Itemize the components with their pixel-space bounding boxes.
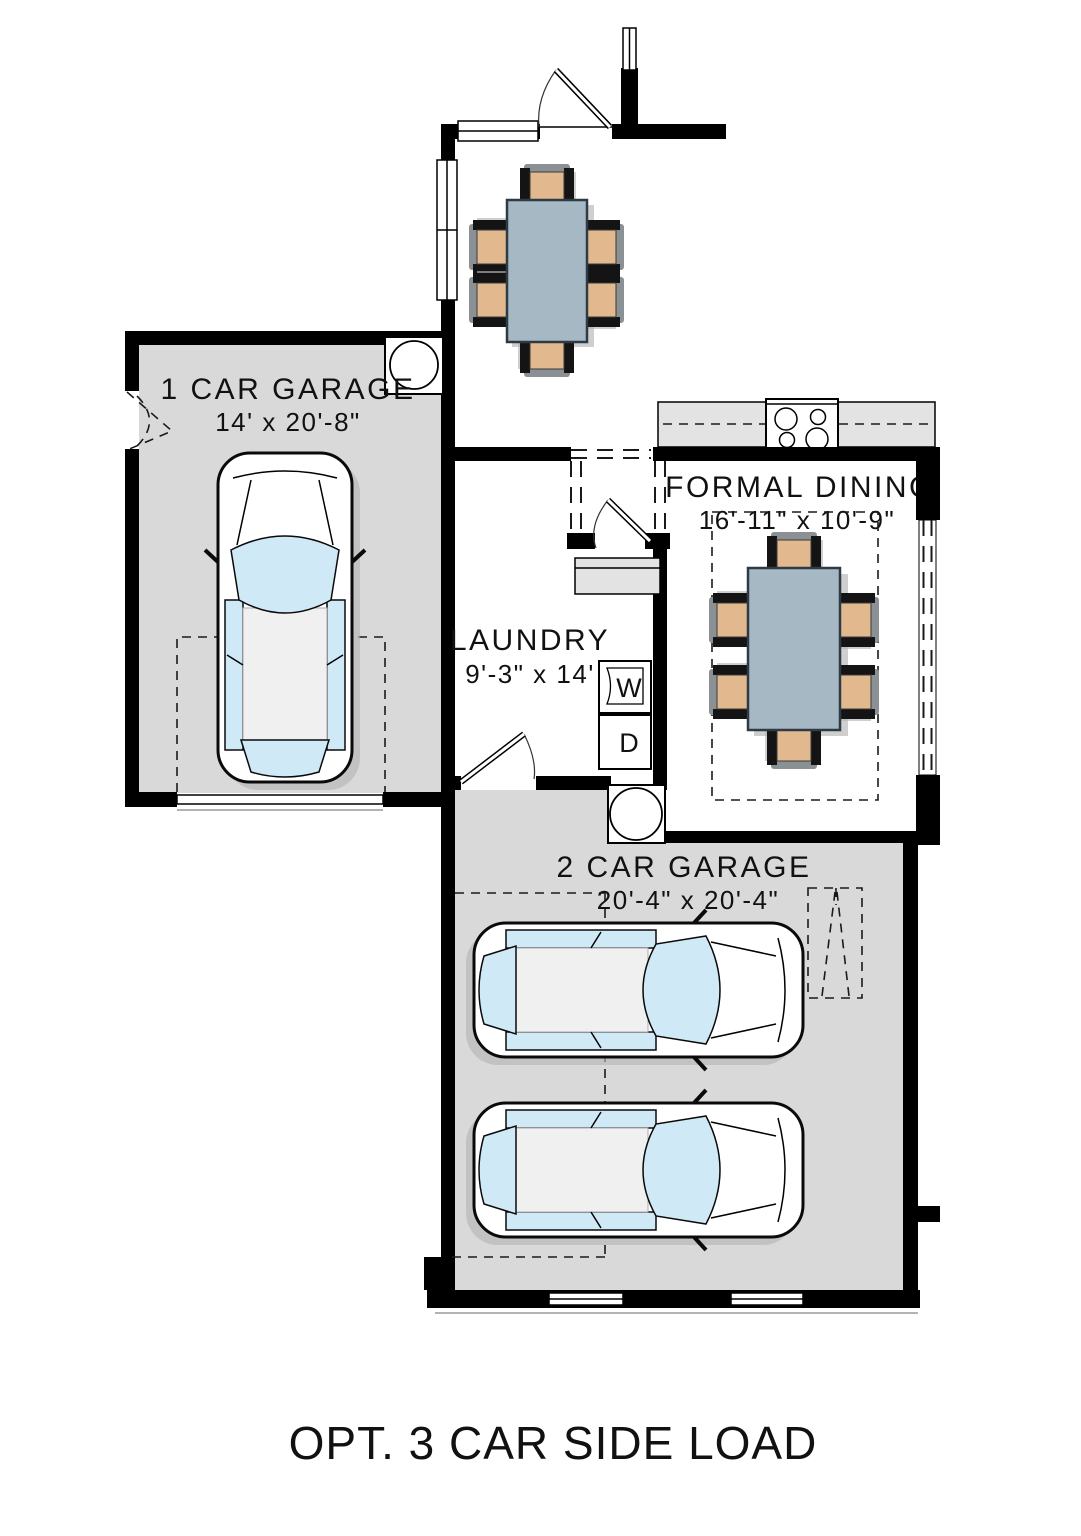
garage-1-dims: 14' x 20'-8" (215, 407, 361, 437)
garage-1-label: 1 CAR GARAGE (160, 373, 415, 406)
laundry-room: LAUNDRY 9'-3" x 14' W D (441, 624, 656, 790)
garage-2-window-left (549, 1293, 623, 1305)
wall (903, 845, 918, 1292)
floor-plan: 1 CAR GARAGE 14' x 20'-8" (0, 0, 1081, 1536)
washer-icon: W (599, 661, 651, 713)
table-top (748, 568, 840, 730)
dining-table (709, 532, 879, 769)
laundry-shelf (575, 558, 660, 594)
entry-top-window (458, 121, 538, 141)
garage-1-door-panel (177, 795, 383, 810)
formal-dining-room: FORMAL DINING 16'-11" x 10'-9" (665, 447, 940, 845)
wall (441, 776, 461, 790)
wall (536, 776, 611, 790)
wall (125, 449, 139, 794)
car-icon (466, 1090, 803, 1250)
wall (441, 447, 571, 461)
door-swing-arc (539, 70, 556, 127)
formal-dining-dims: 16'-11" x 10'-9" (699, 505, 895, 535)
garage-2-dims: 20'-4" x 20'-4" (597, 885, 779, 915)
dryer-label: D (619, 728, 639, 758)
wall (916, 447, 940, 520)
cased-opening-top (571, 450, 651, 458)
dining-window-band (919, 520, 936, 775)
wall (125, 792, 177, 807)
garage-2-label: 2 CAR GARAGE (556, 851, 811, 884)
breakfast-left-window (437, 160, 457, 300)
garage-2-room: 2 CAR GARAGE 20'-4" x 20'-4" (424, 785, 940, 1313)
laundry-door (461, 734, 535, 782)
wall (441, 790, 455, 1290)
water-heater-icon (608, 785, 665, 843)
wall (621, 68, 638, 126)
formal-dining-label: FORMAL DINING (665, 471, 935, 504)
garage-2-window-right (731, 1293, 803, 1305)
cased-opening-right (655, 461, 665, 531)
entry-side-window (623, 28, 636, 70)
washer-label: W (616, 673, 642, 703)
wall (612, 124, 726, 139)
laundry-label: LAUNDRY (450, 624, 610, 657)
wall (567, 533, 595, 549)
wall (916, 775, 940, 845)
wall (424, 1257, 441, 1290)
wall (441, 331, 455, 810)
wall (125, 331, 139, 391)
car-icon (205, 453, 365, 790)
plan-caption: OPT. 3 CAR SIDE LOAD (289, 1417, 818, 1469)
car-icon (466, 910, 803, 1070)
laundry-dims: 9'-3" x 14' (465, 659, 595, 689)
wall (665, 831, 918, 845)
wall (653, 447, 940, 461)
dryer-icon: D (599, 715, 651, 769)
wall (427, 1290, 920, 1308)
vestibule-door (594, 500, 650, 548)
wall (918, 1206, 940, 1222)
entry-door (539, 70, 612, 127)
kitchen-counter (658, 399, 935, 450)
breakfast-table (469, 164, 624, 377)
floor-plan-page: 1 CAR GARAGE 14' x 20'-8" (0, 0, 1081, 1536)
table-top (507, 200, 587, 342)
cooktop-icon (766, 399, 838, 450)
cased-opening-left (571, 461, 581, 531)
garage-1-room: 1 CAR GARAGE 14' x 20'-8" (125, 331, 455, 810)
